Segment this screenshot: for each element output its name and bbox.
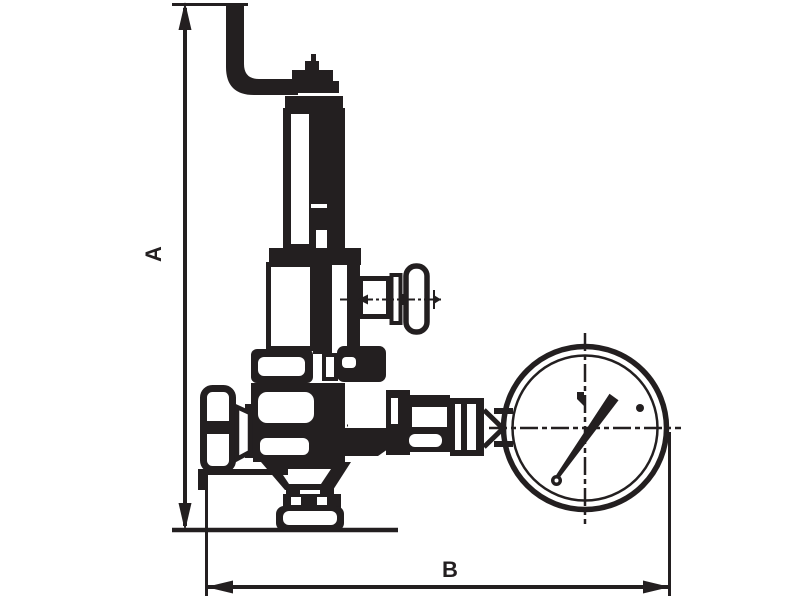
union-window xyxy=(412,407,447,427)
outlet-neck-slot-right xyxy=(317,497,327,505)
dimension-a-arrow-up xyxy=(179,2,192,30)
lever-handle xyxy=(226,4,298,95)
handwheel-hub-band xyxy=(203,421,233,434)
bonnet-highlight-slit xyxy=(291,114,309,244)
dimension-b-arrow-left xyxy=(206,581,233,594)
body-lower-slot xyxy=(260,438,309,455)
coupling-nut-stripe-left xyxy=(455,404,461,450)
coupling-nut-stripe-right xyxy=(467,404,476,450)
bonnet-center-column xyxy=(313,262,332,354)
cap-nub xyxy=(305,61,319,71)
gauge-dial-dot xyxy=(636,404,644,412)
dimension-b-arrow-right xyxy=(643,581,670,594)
gauge-needle xyxy=(554,394,618,480)
dimension-b-label: B xyxy=(442,557,458,582)
dimension-a-label: A xyxy=(141,246,166,262)
tee-valve xyxy=(337,262,441,382)
outlet-flange-slot xyxy=(283,511,337,525)
cap-band-lower xyxy=(288,81,339,93)
bonnet-lower-housing xyxy=(269,265,313,349)
bonnet-detail-slot xyxy=(316,230,327,250)
outlet-pipe-slit xyxy=(391,398,398,424)
tee-foot-detail xyxy=(342,357,356,368)
outlet-neck-slot-left xyxy=(291,497,301,505)
drawing-canvas: A B xyxy=(0,0,800,598)
body-small-gland xyxy=(324,355,336,379)
valve-technical-drawing: A B xyxy=(0,0,800,598)
lever-arm xyxy=(226,4,298,95)
gauge-needle-tail-center xyxy=(555,479,559,483)
body-chamber-window xyxy=(258,392,314,423)
body-top-flange-slot xyxy=(258,357,305,376)
adjusting-cap xyxy=(285,54,343,110)
dimension-a-arrow-down xyxy=(179,503,192,531)
handwheel-stem-cone xyxy=(237,407,250,459)
cap-collar xyxy=(285,96,343,110)
inlet-bottom-hook xyxy=(198,469,206,490)
gauge-needle-stop-pin xyxy=(577,392,584,406)
pressure-gauge xyxy=(489,333,681,524)
bonnet-detail-dash xyxy=(311,204,327,208)
union-lower-slot xyxy=(409,434,442,447)
inlet-bottom-line xyxy=(198,469,288,475)
gauge-connection-fitting xyxy=(386,390,513,456)
